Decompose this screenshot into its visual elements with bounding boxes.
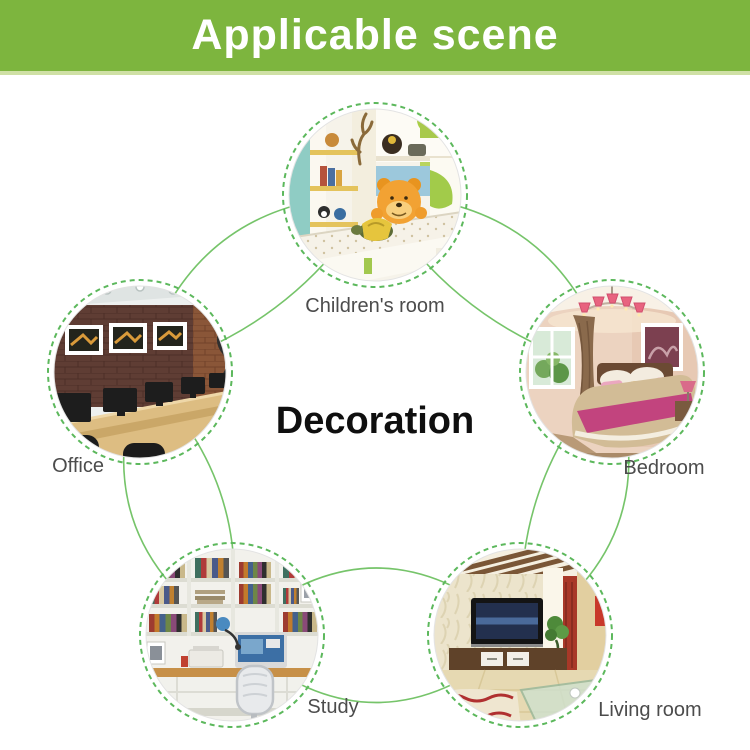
center-title: Decoration — [225, 400, 525, 443]
bedroom-photo — [517, 277, 707, 467]
childrens-room-label: Children's room — [275, 295, 475, 318]
scene-childrens-room — [280, 100, 470, 290]
scene-office — [45, 277, 235, 467]
study-label: Study — [281, 696, 385, 719]
office-label: Office — [18, 455, 138, 478]
bedroom-label: Bedroom — [602, 457, 726, 480]
office-photo — [45, 277, 235, 467]
applicable-scene-infographic: Applicable scene — [0, 0, 750, 750]
living-room-label: Living room — [584, 699, 716, 722]
childrens-room-photo — [280, 100, 470, 290]
scene-bedroom — [517, 277, 707, 467]
